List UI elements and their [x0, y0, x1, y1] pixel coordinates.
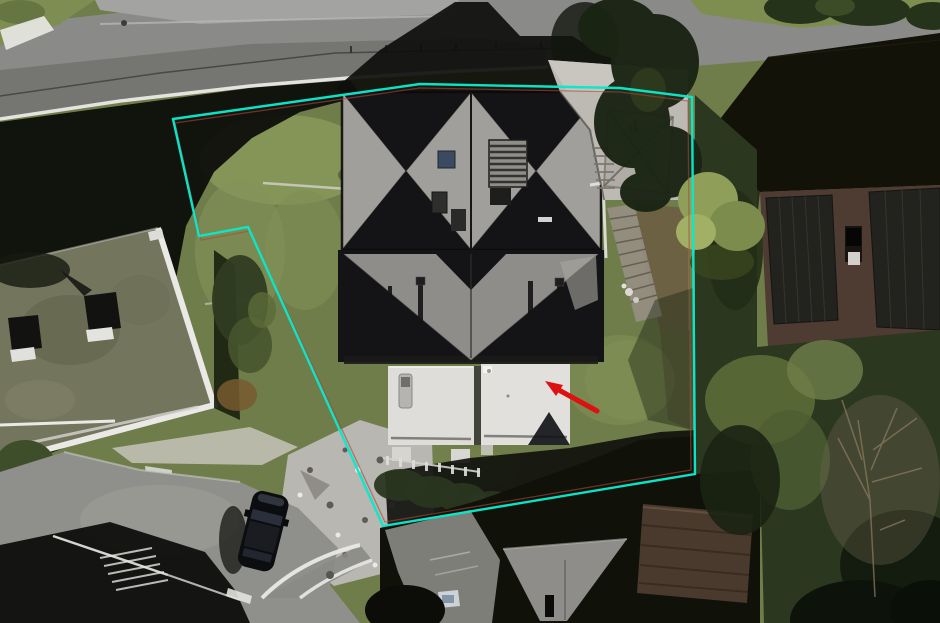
roof-stairs: [489, 140, 527, 187]
upper-roof: [342, 92, 606, 258]
solar-array: [869, 188, 940, 330]
chimney: [8, 315, 42, 351]
aerial-photo: d: [0, 0, 940, 623]
roof-vent: [432, 192, 447, 213]
roof-vent: [490, 188, 511, 205]
skylight: [438, 151, 455, 168]
aerial-photo-canvas: d: [0, 0, 940, 623]
lower-roof: [338, 250, 604, 364]
chimney: [84, 292, 121, 332]
solar-array: [766, 195, 838, 324]
roof-vent: [451, 209, 466, 231]
